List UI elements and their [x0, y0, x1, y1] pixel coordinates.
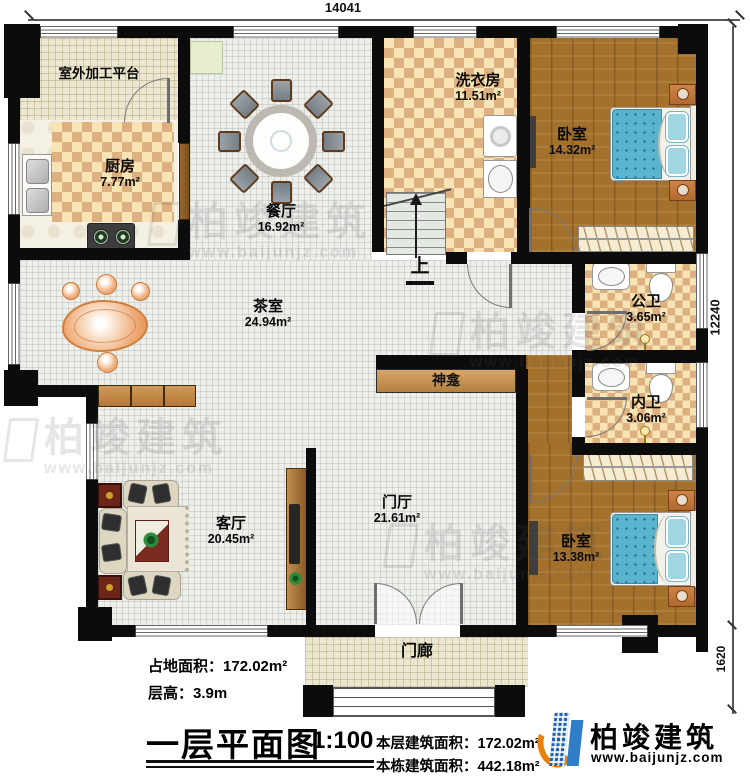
this-floor-area-label: 本层建筑面积： — [376, 736, 478, 752]
wall-private-bath-bottom — [578, 443, 696, 455]
sofa-pillow — [151, 483, 171, 505]
wall-tv-partition — [306, 448, 316, 625]
room-label-public-bath: 公卫3.65m² — [626, 293, 666, 325]
floor-drain — [640, 426, 650, 436]
wall-bottom-entry-left — [310, 625, 375, 637]
window-bedroom1 — [556, 26, 660, 38]
brand-logo-icon — [538, 710, 586, 770]
wall-bath-left-b — [572, 363, 585, 397]
dimension-right-porch: 1620 — [714, 632, 728, 686]
wall-bedroom1-bottom — [575, 252, 696, 264]
wall-shrine — [376, 355, 526, 369]
sink-basin — [26, 159, 49, 184]
floor-plan: 上 — [0, 0, 750, 782]
floor-drain — [640, 334, 650, 344]
stove-burner — [115, 229, 131, 245]
window-kitchen — [8, 143, 20, 215]
wall-laundry-bottom-a — [446, 252, 467, 264]
bed-mattress — [612, 109, 662, 179]
plan-scale: 1:100 — [312, 727, 373, 755]
land-area-label: 占地面积： — [148, 658, 223, 675]
stairs-up-label: 上 — [410, 256, 429, 278]
bed-pillow — [666, 517, 688, 547]
wall-right — [696, 26, 708, 652]
door-leaf-bedroom2 — [529, 455, 532, 503]
wall-kitchen-bottom — [8, 248, 190, 260]
nightstand — [668, 490, 695, 511]
porch-column — [495, 685, 525, 717]
sink-bowl — [598, 368, 625, 387]
sofa-pillow — [151, 575, 171, 597]
wall-hallway-left — [516, 369, 528, 625]
room-label-tea: 茶室24.94m² — [245, 298, 292, 330]
bathroom-sink — [592, 363, 630, 391]
stairs-arrow-head — [410, 193, 422, 205]
end-table — [97, 483, 122, 508]
dining-cabinet — [190, 41, 223, 74]
wall-bath-divider — [572, 350, 696, 363]
wardrobe-bedroom2 — [583, 453, 693, 481]
bed-pillow — [666, 112, 688, 142]
stairs-up-underline — [406, 281, 434, 285]
window-dining — [233, 26, 339, 38]
room-label-platform: 室外加工平台 — [59, 66, 140, 82]
tea-table-inner-ring — [74, 309, 136, 343]
door-leaf-public-bath — [587, 311, 627, 314]
dining-table — [245, 105, 317, 177]
shrine-shelf: 神龛 — [376, 369, 516, 393]
room-label-foyer: 门厅21.61m² — [374, 494, 421, 526]
title-underline-thin — [146, 766, 374, 768]
building-area-row: 本栋建筑面积：442.18m² — [376, 755, 540, 776]
window-living-left — [86, 423, 98, 480]
door-leaf-laundry — [509, 264, 512, 308]
porch-column — [303, 685, 333, 717]
corner-pillar — [678, 24, 708, 54]
wall-bath-left-a — [572, 263, 585, 313]
land-area-row: 占地面积：172.02m² — [148, 655, 287, 676]
brand-site: www.baijunjz.com — [591, 750, 724, 765]
washer-door — [490, 126, 511, 147]
room-label-dining: 餐厅16.92m² — [258, 203, 305, 235]
dimension-line-top — [28, 19, 740, 21]
nightstand-lamp — [677, 184, 689, 196]
entry-door-leaf-right — [460, 583, 463, 624]
door-leaf-bedroom1 — [529, 208, 532, 252]
bathroom-sink — [592, 262, 630, 290]
kitchen-stove — [87, 223, 135, 250]
dimension-top-value: 14041 — [313, 0, 373, 15]
laundry-sink — [483, 160, 517, 198]
dining-chair — [218, 131, 241, 152]
land-area-value: 172.02m² — [223, 658, 287, 675]
room-label-bedroom2: 卧室13.38m² — [553, 533, 600, 565]
room-label-porch: 门廊 — [401, 643, 433, 661]
dining-chair — [271, 79, 292, 102]
floor-height-value: 3.9m — [193, 685, 227, 702]
title-underline-thick — [146, 760, 374, 763]
porch-steps — [333, 687, 495, 717]
door-leaf-private-bath — [587, 397, 627, 400]
window-platform — [40, 26, 118, 38]
wall-dining-laundry — [372, 38, 384, 252]
tea-stool — [62, 282, 80, 300]
window-tea-room — [8, 283, 20, 365]
building-area-value: 442.18m² — [478, 759, 540, 775]
sofa-pillow — [101, 513, 122, 532]
end-table-decor — [106, 492, 113, 499]
floor-height-label: 层高： — [148, 685, 193, 702]
cabinet-divider — [163, 386, 165, 406]
room-label-living: 客厅20.45m² — [208, 515, 255, 547]
corner-pillar — [4, 24, 40, 54]
dining-chair — [322, 131, 345, 152]
building-area-label: 本栋建筑面积： — [376, 759, 478, 775]
nightstand-lamp — [677, 88, 689, 100]
tea-stool — [97, 352, 118, 373]
end-table-decor — [106, 584, 113, 591]
this-floor-area-value: 172.02m² — [478, 736, 540, 752]
washing-machine — [483, 115, 517, 157]
watermark-logo-icon — [3, 418, 39, 462]
nightstand-lamp — [676, 494, 688, 506]
nightstand-lamp — [676, 590, 688, 602]
room-label-bedroom1: 卧室14.32m² — [549, 126, 596, 158]
window-private-bath — [696, 362, 708, 428]
kitchen-sliding-door — [179, 143, 190, 220]
window-public-bath — [696, 253, 708, 329]
floor-hallway — [526, 355, 572, 447]
wall-kitchen-right-upper — [178, 38, 190, 143]
tea-stool — [96, 274, 117, 295]
sink-basin — [26, 188, 49, 213]
this-floor-area-row: 本层建筑面积：172.02m² — [376, 732, 540, 753]
stove-burner — [93, 229, 109, 245]
kitchen-sink-counter — [22, 154, 52, 216]
window-bedroom2-bottom — [556, 625, 648, 637]
bed-pillow — [666, 551, 688, 581]
shrine-label: 神龛 — [432, 372, 460, 388]
end-table — [97, 575, 122, 600]
bottom-left-pillar — [78, 607, 112, 641]
room-label-private-bath: 内卫3.06m² — [626, 394, 666, 426]
left-mid-pillar — [4, 370, 38, 406]
tv-plant — [289, 572, 302, 585]
sink-bowl — [488, 165, 513, 193]
entry-door-leaf-left — [374, 583, 377, 624]
lazy-susan — [270, 130, 292, 152]
platform-pillar — [4, 54, 40, 98]
plan-title: 一层平面图 — [146, 718, 321, 766]
living-tv — [289, 504, 300, 564]
wall-kitchen-right-lower — [178, 220, 190, 260]
wall-bottom-entry-right — [460, 625, 518, 637]
logo-tower-2 — [567, 720, 584, 766]
window-living-bottom — [135, 625, 268, 637]
sofa-pillow — [127, 574, 148, 596]
sink-bowl — [598, 267, 625, 286]
cabinet-divider — [130, 386, 132, 406]
sofa-pillow — [101, 543, 122, 562]
bed-mattress — [612, 514, 658, 584]
room-label-laundry: 洗衣房11.51m² — [455, 72, 501, 104]
stairs-arrow-stem — [415, 204, 417, 258]
wall-tv-bedroom2 — [529, 521, 538, 575]
wardrobe-bedroom1 — [578, 226, 694, 252]
window-laundry — [413, 26, 477, 38]
room-label-kitchen: 厨房7.77m² — [100, 158, 140, 190]
nightstand — [668, 586, 695, 607]
nightstand — [669, 84, 696, 105]
dimension-line-right — [732, 26, 734, 714]
nightstand — [669, 180, 696, 201]
tea-stool — [131, 282, 150, 301]
wall-laundry-bottom-b — [511, 252, 577, 264]
dimension-right-main: 12240 — [708, 291, 723, 345]
sideboard-cabinets — [98, 385, 196, 407]
table-plant — [143, 532, 159, 548]
bed-pillow — [666, 146, 688, 176]
door-leaf-kitchen-platform — [167, 78, 170, 123]
dining-chair — [271, 181, 292, 204]
floor-height-row: 层高：3.9m — [148, 682, 227, 703]
